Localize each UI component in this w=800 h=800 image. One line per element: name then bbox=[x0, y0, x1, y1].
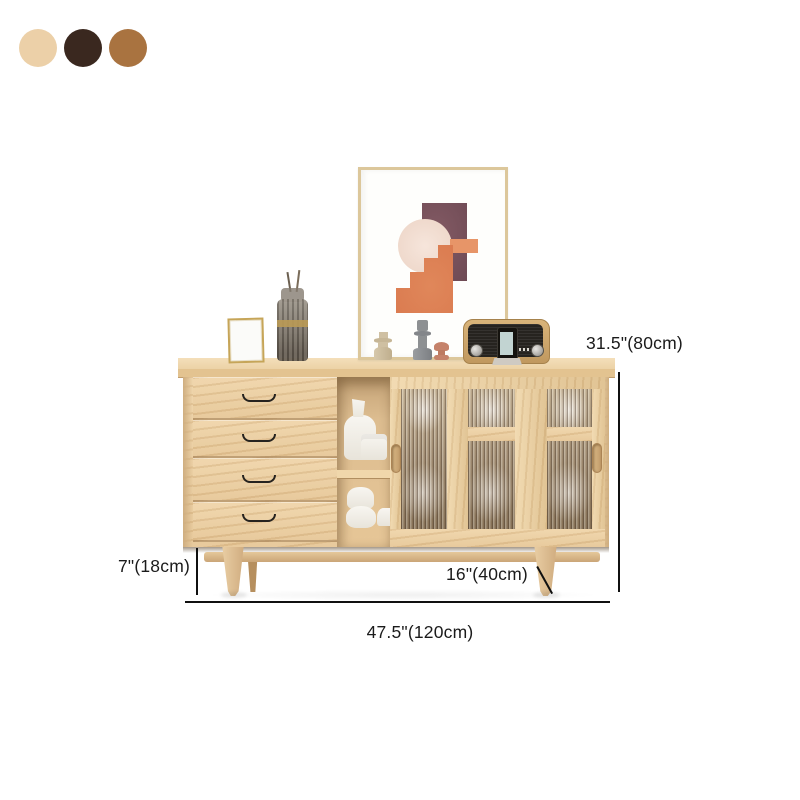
width-dimension-label: 47.5"(120cm) bbox=[355, 622, 485, 643]
radio-phone-dock bbox=[497, 327, 518, 360]
height-dimension-line bbox=[618, 372, 620, 592]
candlestick-cream bbox=[373, 332, 393, 360]
phone-screen bbox=[500, 332, 513, 355]
door-stile-2 bbox=[447, 389, 468, 529]
candlestick-gray-stem bbox=[418, 336, 427, 348]
vintage-radio bbox=[463, 319, 550, 364]
door-top-rail bbox=[390, 377, 605, 389]
leg-height-dimension-label: 7"(18cm) bbox=[110, 556, 190, 577]
candlestick-gray-base bbox=[413, 348, 432, 360]
door-bottom-rail bbox=[390, 529, 605, 547]
door-handle-right bbox=[592, 443, 602, 473]
door-mid-rail-right bbox=[547, 427, 592, 441]
radio-knob-right bbox=[531, 344, 544, 357]
radio-buttons bbox=[519, 348, 530, 351]
sliding-door-section bbox=[0, 0, 800, 800]
leg-shadow-left bbox=[221, 592, 247, 598]
sideboard-image bbox=[0, 0, 800, 800]
height-dimension-label: 31.5"(80cm) bbox=[586, 333, 683, 354]
glass-vase-band bbox=[277, 320, 308, 327]
door-stile-3 bbox=[515, 389, 547, 529]
glass-pane-left bbox=[401, 389, 447, 529]
depth-dimension-label: 16"(40cm) bbox=[446, 564, 528, 585]
vase-terracotta bbox=[433, 342, 450, 360]
candlestick-gray-top bbox=[417, 320, 428, 331]
leg-shadow-right bbox=[533, 592, 560, 598]
door-mid-rail-middle bbox=[468, 427, 515, 441]
candlestick-gray bbox=[412, 320, 433, 360]
radio-stand bbox=[492, 358, 522, 365]
leg-height-dimension-line bbox=[196, 548, 198, 595]
glass-vase bbox=[277, 299, 308, 361]
glass-pane-middle bbox=[468, 389, 515, 529]
artwork-orange-bar bbox=[450, 239, 478, 253]
radio-knob-left bbox=[470, 344, 483, 357]
door-handle-left bbox=[391, 444, 401, 473]
photo-frame bbox=[227, 318, 264, 364]
width-dimension-line bbox=[185, 601, 610, 603]
product-image: 31.5"(80cm) 7"(18cm) 16"(40cm) 47.5"(120… bbox=[0, 0, 800, 800]
candlestick-cream-base bbox=[374, 347, 392, 360]
glass-pane-right bbox=[547, 389, 592, 529]
vase-terracotta-base bbox=[434, 355, 449, 360]
